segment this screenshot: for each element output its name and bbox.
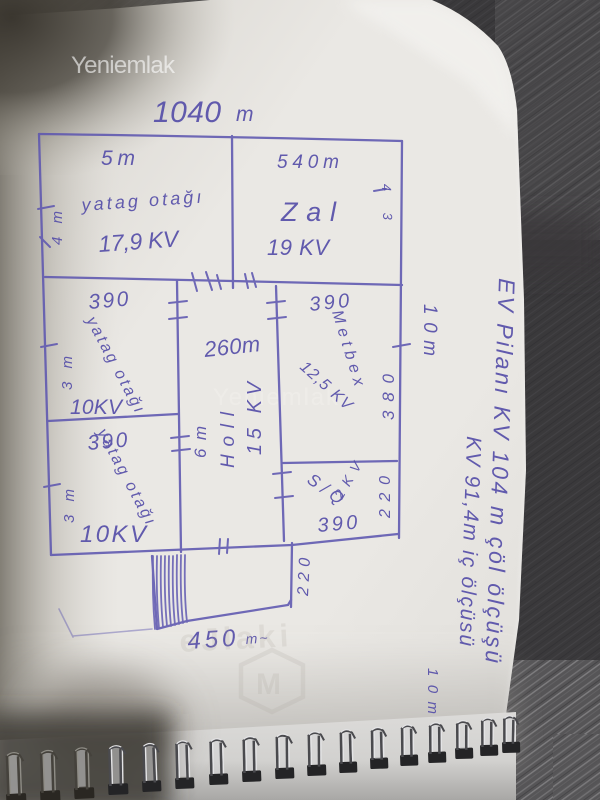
svg-text:4 3: 4 3 xyxy=(379,184,395,221)
svg-text:19 KV: 19 KV xyxy=(267,235,331,260)
svg-text:10m: 10m xyxy=(419,304,440,356)
svg-text:220: 220 xyxy=(295,557,314,597)
svg-text:10KV: 10KV xyxy=(70,396,124,419)
svg-text:390: 390 xyxy=(317,512,359,537)
svg-text:1040: 1040 xyxy=(153,96,221,129)
svg-text:10m: 10m xyxy=(424,668,441,714)
svg-text:540m: 540m xyxy=(277,152,339,173)
svg-text:m: m xyxy=(236,103,254,126)
svg-text:10KV: 10KV xyxy=(80,521,148,548)
svg-text:390: 390 xyxy=(87,288,129,314)
svg-text:M: M xyxy=(256,668,281,701)
svg-text:380: 380 xyxy=(379,373,398,420)
svg-text:Yeniemlak: Yeniemlak xyxy=(71,52,176,79)
svg-text:220: 220 xyxy=(377,476,394,519)
svg-text:5m: 5m xyxy=(101,147,135,170)
